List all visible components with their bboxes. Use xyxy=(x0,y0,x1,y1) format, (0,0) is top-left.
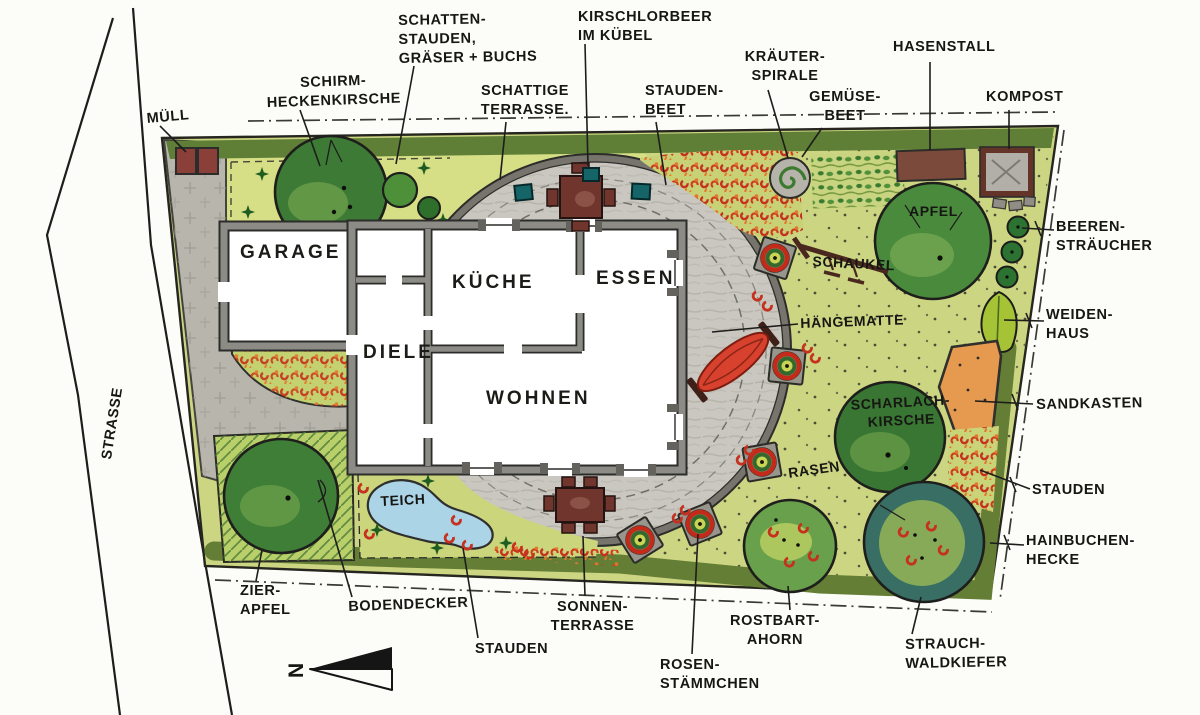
room-label-garage: GARAGE xyxy=(240,240,341,265)
label-beeren-straeucher: BEEREN- STRÄUCHER xyxy=(1056,218,1152,256)
room-label-wohnen: WOHNEN xyxy=(486,386,591,411)
room-label-kueche: KÜCHE xyxy=(452,270,535,295)
label-hainbuchen-hecke: HAINBUCHEN- HECKE xyxy=(1026,532,1135,570)
label-weiden-haus: WEIDEN- HAUS xyxy=(1046,306,1113,344)
label-sandkasten: SANDKASTEN xyxy=(1036,394,1143,415)
ornamental-apple-tree xyxy=(224,439,338,553)
waste-bins xyxy=(176,148,218,174)
label-stauden-unten: STAUDEN xyxy=(475,640,548,659)
compost-bin xyxy=(980,147,1034,197)
room-label-essen: ESSEN xyxy=(596,266,675,291)
label-schirm-heckenkirsche: SCHIRM- HECKENKIRSCHE xyxy=(243,70,424,115)
label-hasenstall: HASENSTALL xyxy=(893,38,995,57)
label-strauch-waldkiefer: STRAUCH- WALDKIEFER xyxy=(905,634,1008,674)
label-teich: TEICH xyxy=(380,490,426,511)
north-letter: N xyxy=(283,662,311,678)
apple-tree xyxy=(875,183,991,299)
label-kraeuter-spirale: KRÄUTER- SPIRALE xyxy=(735,48,835,86)
rust-beard-maple xyxy=(744,500,836,592)
label-stauden-beet: STAUDEN- BEET xyxy=(645,82,724,120)
label-gemuese-beet: GEMÜSE- BEET xyxy=(795,88,895,126)
label-schatten-stauden: SCHATTEN- STAUDEN, GRÄSER + BUCHS xyxy=(398,10,538,70)
label-haengematte: HÄNGEMATTE xyxy=(800,310,904,332)
label-kompost: KOMPOST xyxy=(986,88,1064,107)
rabbit-hutch xyxy=(896,149,965,181)
label-kirschlorbeer: KIRSCHLORBEER IM KÜBEL xyxy=(578,8,712,46)
label-rosen-staemmchen: ROSEN- STÄMMCHEN xyxy=(660,656,760,694)
herb-spiral xyxy=(770,158,810,198)
label-stauden-rechts: STAUDEN xyxy=(1032,481,1105,500)
label-zier-apfel: ZIER- APFEL xyxy=(240,582,291,620)
label-schattige-terrasse: SCHATTIGE TERRASSE. xyxy=(470,82,580,120)
shrub-pine xyxy=(864,482,984,602)
label-scharlach-kirsche: SCHARLACH- KIRSCHE xyxy=(845,390,957,433)
label-rostbart-ahorn: ROSTBART- AHORN xyxy=(715,612,835,650)
label-apfel: APFEL xyxy=(909,202,958,220)
label-sonnen-terrasse: SONNEN- TERRASSE xyxy=(540,598,645,636)
room-label-diele: DIELE xyxy=(363,340,434,365)
garden-plan-page: STRASSE MÜLL SCHIRM- HECKENKIRSCHE SCHAT… xyxy=(0,0,1200,715)
north-arrow xyxy=(310,647,392,690)
label-muell: MÜLL xyxy=(146,106,190,129)
